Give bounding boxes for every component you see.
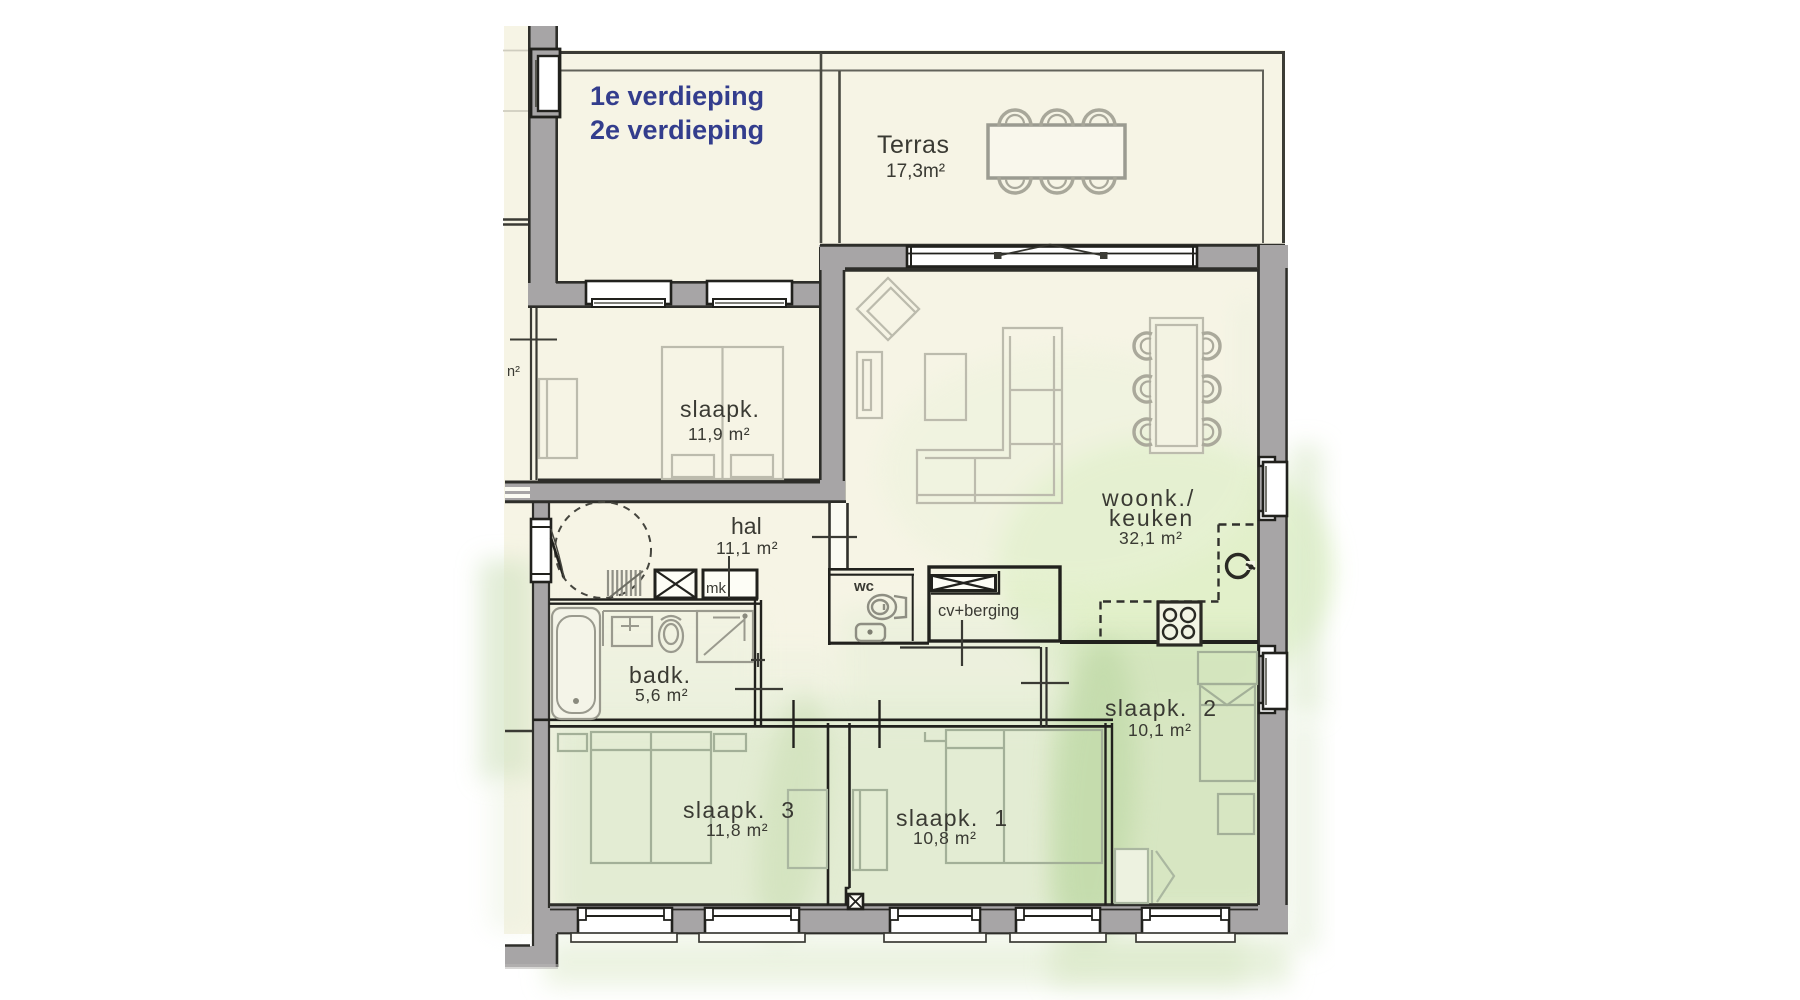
- svg-text:10,1 m²: 10,1 m²: [1128, 720, 1192, 740]
- svg-text:5,6 m²: 5,6 m²: [635, 685, 688, 705]
- svg-text:hal: hal: [731, 513, 762, 539]
- svg-text:Terras: Terras: [877, 131, 949, 159]
- svg-text:slaapk.: slaapk.: [680, 396, 760, 422]
- svg-text:cv+berging: cv+berging: [938, 602, 1019, 620]
- svg-text:1e verdieping: 1e verdieping: [590, 81, 764, 111]
- svg-text:11,9 m²: 11,9 m²: [688, 424, 750, 444]
- svg-text:32,1 m²: 32,1 m²: [1119, 528, 1183, 548]
- svg-text:10,8 m²: 10,8 m²: [913, 828, 977, 848]
- svg-text:2e verdieping: 2e verdieping: [590, 115, 764, 145]
- svg-text:wc: wc: [853, 578, 874, 595]
- svg-text:17,3m²: 17,3m²: [886, 161, 945, 182]
- svg-text:11,8 m²: 11,8 m²: [706, 820, 768, 840]
- svg-text:11,1 m²: 11,1 m²: [716, 538, 778, 558]
- svg-text:mk: mk: [706, 580, 726, 597]
- svg-text:n²: n²: [507, 364, 520, 380]
- svg-text:slaapk. 2: slaapk. 2: [1105, 695, 1217, 721]
